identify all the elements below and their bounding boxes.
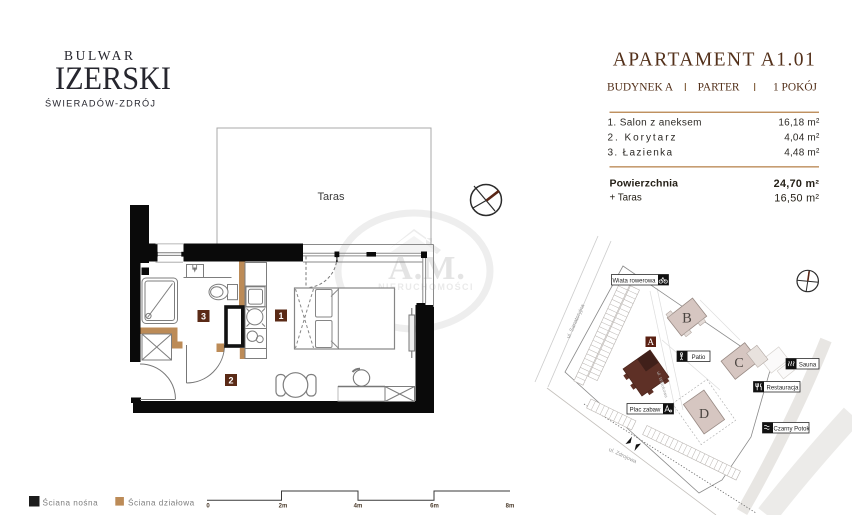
svg-text:Czarny Potok: Czarny Potok — [773, 426, 810, 432]
svg-text:Restauracja: Restauracja — [766, 385, 799, 391]
svg-text:2: 2 — [228, 375, 233, 385]
svg-text:8m: 8m — [506, 504, 515, 510]
svg-text:BUDYNEK A: BUDYNEK A — [607, 81, 674, 93]
svg-text:ŚWIERADÓW-ZDRÓJ: ŚWIERADÓW-ZDRÓJ — [45, 98, 156, 109]
svg-text:6m: 6m — [430, 504, 439, 510]
svg-text:B: B — [682, 311, 692, 327]
svg-text:A: A — [647, 337, 654, 347]
svg-text:Plac zabaw: Plac zabaw — [630, 407, 661, 413]
svg-text:1: 1 — [278, 311, 283, 321]
svg-text:Sauna: Sauna — [799, 362, 817, 368]
svg-text:Wiata rowerowa: Wiata rowerowa — [612, 278, 656, 284]
svg-text:1 POKÓJ: 1 POKÓJ — [773, 81, 818, 93]
svg-text:D: D — [699, 407, 709, 422]
svg-text:1. Salon z aneksem: 1. Salon z aneksem — [608, 118, 702, 129]
svg-text:Ściana nośna: Ściana nośna — [43, 497, 99, 508]
svg-text:Powierzchnia: Powierzchnia — [610, 178, 679, 190]
svg-text:Patio: Patio — [692, 355, 706, 361]
svg-text:16,18 m²: 16,18 m² — [778, 118, 820, 129]
svg-text:16,50 m²: 16,50 m² — [774, 192, 819, 204]
svg-text:2. Korytarz: 2. Korytarz — [608, 133, 676, 144]
svg-text:Ściana działowa: Ściana działowa — [128, 497, 195, 508]
svg-text:+ Taras: + Taras — [610, 193, 642, 204]
svg-text:PARTER: PARTER — [698, 81, 740, 93]
svg-text:4,04 m²: 4,04 m² — [784, 133, 820, 144]
svg-text:2m: 2m — [279, 504, 288, 510]
svg-text:IZERSKI: IZERSKI — [55, 61, 171, 97]
svg-text:APARTAMENT A1.01: APARTAMENT A1.01 — [613, 49, 815, 70]
svg-text:C: C — [734, 356, 743, 371]
svg-text:Taras: Taras — [318, 191, 345, 203]
svg-text:3: 3 — [201, 311, 206, 321]
svg-text:4,48 m²: 4,48 m² — [784, 147, 820, 158]
svg-text:4m: 4m — [354, 504, 363, 510]
svg-text:24,70 m²: 24,70 m² — [774, 178, 820, 190]
